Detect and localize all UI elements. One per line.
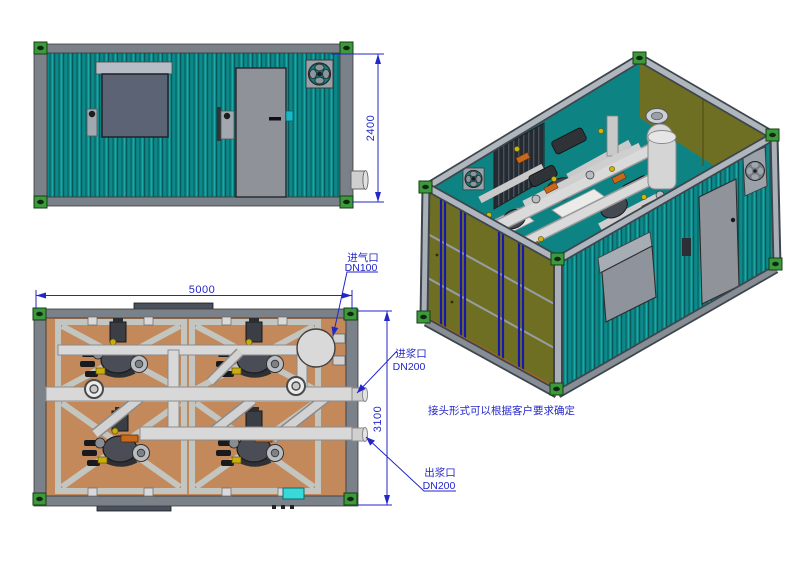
bolt-pad (278, 317, 287, 325)
corner-casting (340, 196, 353, 208)
plan-view (33, 303, 368, 511)
corner-casting (34, 196, 47, 208)
top-rail (46, 44, 341, 53)
corner-casting (550, 383, 563, 395)
corner-casting (766, 129, 779, 141)
corner-casting (551, 253, 564, 265)
left-corner-post (34, 53, 47, 197)
exhaust-fan-icon (306, 60, 333, 88)
slurry-inlet-size: DN200 (393, 361, 426, 373)
dim-arrow (342, 293, 352, 299)
door-latch-knob (224, 113, 230, 119)
pipe-elbow-cap (648, 131, 676, 144)
flange-ring (85, 380, 103, 398)
corner-casting (769, 258, 782, 270)
bolt-pad (88, 488, 97, 496)
interior-fan-icon (463, 168, 484, 190)
dim-width-text: 3100 (372, 406, 384, 432)
corner-casting (344, 493, 357, 505)
corner-casting (633, 52, 646, 64)
plan-bottom-rail (34, 496, 358, 506)
window-latch-knob (89, 111, 95, 117)
corner-casting (417, 311, 430, 323)
corner-casting (344, 308, 357, 320)
door-knob (286, 111, 293, 121)
slurry-outlet-size: DN200 (423, 480, 456, 492)
corner-casting (34, 42, 47, 54)
door-handle (269, 117, 281, 121)
bolt-pad (144, 488, 153, 496)
corner-casting (419, 181, 432, 193)
slurry-inlet-label: 进浆口 (395, 347, 427, 360)
door (236, 68, 286, 197)
rivet (436, 254, 439, 257)
stub-cap (362, 428, 367, 442)
corner-casting (33, 308, 46, 320)
flange-ring (287, 377, 305, 395)
corner-post (424, 187, 426, 318)
pipe-lower-header (140, 427, 352, 440)
corner-post (774, 136, 777, 266)
isometric-view (417, 52, 782, 400)
bolt-pad (222, 317, 231, 325)
leader-slurry-inlet (357, 351, 397, 393)
iso-door-handle (731, 218, 735, 222)
dim-width-3100: 3100 (358, 311, 392, 505)
bolt-pad (144, 317, 153, 325)
pipe-stub-cap (363, 171, 368, 190)
flange (586, 171, 594, 179)
side-elevation-view (34, 42, 368, 208)
skid-mark (272, 505, 276, 509)
control-box (283, 488, 304, 499)
air-inlet-tank (297, 329, 335, 367)
pipe-elbow-body (648, 137, 676, 189)
plan-left-rail (34, 318, 46, 496)
dim-arrow (375, 192, 381, 202)
skid-mark (281, 505, 285, 509)
iso-door (699, 179, 739, 304)
plan-top-rail (34, 309, 358, 318)
rivet (451, 301, 454, 304)
stub-cap (362, 388, 367, 402)
roof-vent-center (651, 112, 662, 120)
window-awning (96, 62, 172, 74)
bottom-rail (46, 197, 341, 206)
bolt-pad (88, 317, 97, 325)
engineering-drawing-sheet: 2400 (0, 0, 800, 566)
corner-casting (33, 493, 46, 505)
dim-length-text: 5000 (189, 284, 215, 296)
dim-height-text: 2400 (365, 115, 377, 141)
tank-nub (333, 334, 345, 343)
riser-pipe (607, 116, 618, 156)
plan-right-rail (346, 318, 358, 496)
dim-arrow (36, 293, 46, 299)
corner-casting (340, 42, 353, 54)
window (102, 74, 168, 137)
air-inlet-size: DN100 (345, 262, 378, 274)
flange (532, 195, 540, 203)
dim-arrow (384, 311, 390, 321)
skid-mark (290, 505, 294, 509)
bolt-pad (222, 488, 231, 496)
note-text: 接头形式可以根据客户要求确定 (428, 404, 575, 417)
dim-arrow (375, 54, 381, 64)
iso-door-latch (682, 238, 691, 256)
door-latch-bar (217, 107, 221, 141)
cad-drawing: 2400 (0, 0, 800, 566)
slurry-outlet-label: 出浆口 (424, 466, 456, 479)
dim-arrow (384, 495, 390, 505)
tank-nub (333, 356, 345, 365)
